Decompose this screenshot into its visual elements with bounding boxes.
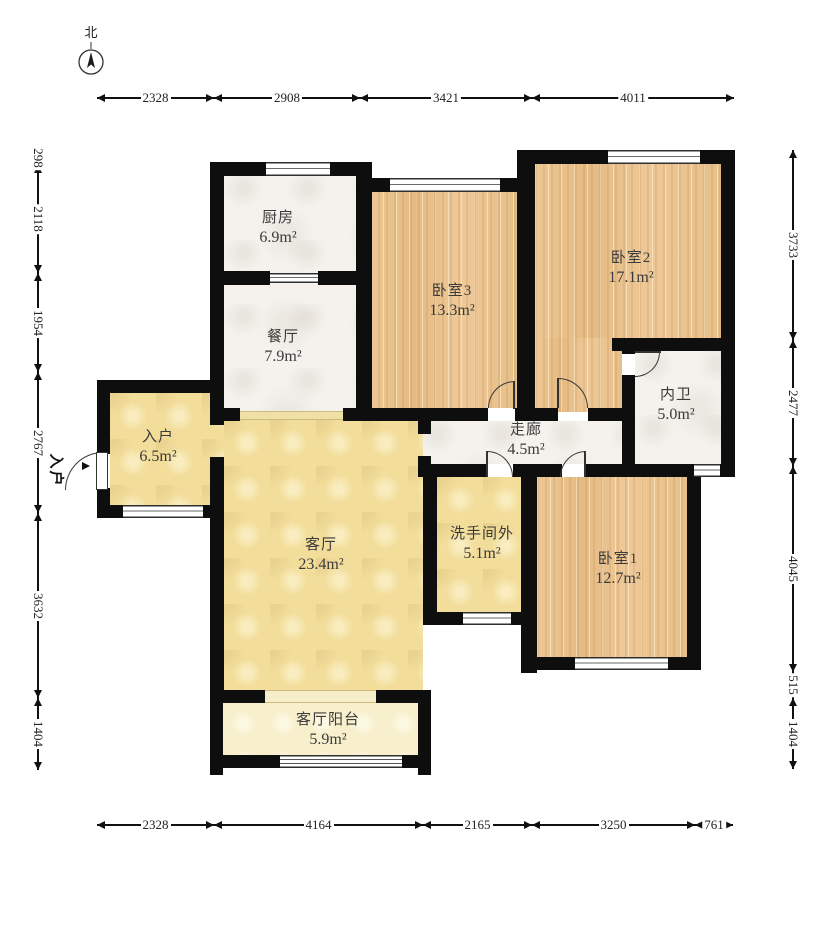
window-bedroom1 [575, 657, 668, 670]
dimension-tick [34, 698, 42, 706]
window-bedroom3 [390, 178, 500, 192]
dimension-label: 4164 [304, 818, 334, 832]
dimension-tick [214, 94, 222, 102]
room-area: 17.1m² [608, 268, 653, 288]
dimension-label: 1954 [31, 308, 45, 338]
room-area: 13.3m² [429, 301, 474, 321]
dimension-tick [524, 821, 532, 829]
entry-direction-marker: 入户 [40, 452, 74, 488]
room-name: 走廊 [507, 420, 544, 440]
dimension-end-arrow [789, 150, 797, 158]
wall-kitchen-bedroom3 [356, 162, 372, 421]
dimension-label: 2477 [786, 388, 800, 418]
room-label-balcony: 客厅阳台 5.9m² [296, 710, 360, 750]
room-area: 6.9m² [259, 228, 296, 248]
dimension-tick [789, 458, 797, 466]
dimension-end-arrow [34, 762, 42, 770]
room-label-corridor: 走廊 4.5m² [507, 420, 544, 460]
dimension-tick [532, 821, 540, 829]
dimension-label: 2118 [31, 204, 45, 234]
room-name: 卧室3 [429, 281, 474, 301]
door-leaf-bedroom2 [557, 378, 559, 408]
dimension-label: 3632 [31, 591, 45, 621]
compass: 北 [69, 22, 113, 81]
entry-direction-label: 入户 [47, 453, 68, 487]
dimension-tick [687, 821, 695, 829]
dimension-tick [789, 340, 797, 348]
dimension-tick [789, 332, 797, 340]
wall-inner-bath-left-a [622, 338, 635, 354]
wall-corridor-top-c [588, 408, 622, 421]
wall-entry-left-a [97, 380, 110, 454]
window-inner-bath [694, 464, 720, 477]
room-name: 厨房 [259, 208, 296, 228]
dimension-label: 2165 [463, 818, 493, 832]
door-leaf-inner-bath [635, 351, 661, 353]
room-label-bedroom1: 卧室1 12.7m² [595, 549, 640, 589]
room-area: 12.7m² [595, 569, 640, 589]
window-kitchen [266, 162, 330, 176]
dimension-tick [352, 94, 360, 102]
door-leaf-washroom [486, 451, 488, 477]
dimension-tick [206, 94, 214, 102]
dimension-tick [524, 94, 532, 102]
room-label-kitchen: 厨房 6.9m² [259, 208, 296, 248]
door-leaf-bedroom1 [584, 451, 586, 477]
dimension-tick [789, 698, 797, 706]
dimension-tick [34, 690, 42, 698]
room-name: 卧室1 [595, 549, 640, 569]
window-washroom [463, 612, 511, 625]
room-area: 5.9m² [296, 730, 360, 750]
window-entry [123, 505, 203, 518]
dimension-end-arrow [789, 761, 797, 769]
window-balcony [280, 755, 402, 768]
wall-kitchen-bottom-left [210, 271, 270, 285]
dimension-label: 3250 [599, 818, 629, 832]
dimension-end-arrow [97, 821, 105, 829]
door-leaf-entry [96, 452, 108, 490]
room-name: 卧室2 [608, 248, 653, 268]
dimension-end-arrow [726, 94, 734, 102]
dimension-label: 4045 [786, 554, 800, 584]
dimension-label: 3421 [431, 91, 461, 105]
dimension-label: 3733 [786, 230, 800, 260]
wall-bedroom1-right [687, 464, 701, 670]
room-name: 客厅阳台 [296, 710, 360, 730]
dimension-tick [415, 821, 423, 829]
dimension-tick [789, 664, 797, 672]
dimension-end-arrow [97, 94, 105, 102]
dimension-label: 2328 [141, 818, 171, 832]
wall-living-left [210, 457, 224, 703]
room-name: 洗手间外 [450, 524, 514, 544]
wall-entry-top [97, 380, 224, 393]
window-bedroom2 [608, 150, 700, 164]
dimension-tick [34, 513, 42, 521]
kitchen-door-opening [270, 273, 318, 283]
compass-north-label: 北 [69, 22, 113, 41]
wall-corridor-west-stub-top [418, 408, 431, 434]
dimension-tick [423, 821, 431, 829]
room-label-dining: 餐厅 7.9m² [264, 327, 301, 367]
dimension-label: 1404 [31, 719, 45, 749]
dimension-label: 1404 [786, 719, 800, 749]
dimension-tick [360, 94, 368, 102]
room-area: 7.9m² [264, 347, 301, 367]
floor-plan-canvas: 厨房 6.9m² 餐厅 7.9m² 卧室3 13.3m² 卧室2 17.1m² … [0, 0, 833, 927]
threshold-living-balcony [263, 690, 378, 703]
room-label-bedroom3: 卧室3 13.3m² [429, 281, 474, 321]
dimension-tick [34, 273, 42, 281]
wall-kitchen-bottom-right [318, 271, 370, 285]
dimension-tick [34, 265, 42, 273]
dimension-tick [206, 821, 214, 829]
dimension-label: 515 [786, 673, 800, 697]
room-label-entry: 入户 6.5m² [139, 427, 176, 467]
wall-corridor-top-a [343, 408, 488, 421]
room-label-washroom: 洗手间外 5.1m² [450, 524, 514, 564]
room-area: 5.1m² [450, 544, 514, 564]
dimension-tick [34, 372, 42, 380]
dimension-tick [34, 505, 42, 513]
threshold-dining-living [240, 411, 343, 420]
room-area: 5.0m² [657, 405, 694, 425]
wall-dining-stub [224, 408, 240, 421]
dimension-tick [34, 364, 42, 372]
dimension-tick [214, 821, 222, 829]
wall-washroom-bedroom1 [521, 464, 537, 673]
room-area: 4.5m² [507, 440, 544, 460]
room-name: 内卫 [657, 385, 694, 405]
dimension-label: 761 [702, 818, 726, 832]
dimension-label: 2908 [272, 91, 302, 105]
dimension-label: 2328 [141, 91, 171, 105]
wall-inner-bath-left-b [622, 375, 635, 473]
room-area: 6.5m² [139, 447, 176, 467]
room-name: 客厅 [298, 535, 343, 555]
entry-direction-arrow [82, 462, 90, 470]
compass-dial-icon [76, 42, 106, 76]
room-name: 餐厅 [264, 327, 301, 347]
room-area: 23.4m² [298, 555, 343, 575]
dimension-label: 4011 [618, 91, 648, 105]
wall-washroom-left [423, 464, 437, 625]
room-label-living: 客厅 23.4m² [298, 535, 343, 575]
door-leaf-bedroom3 [513, 381, 515, 409]
wall-bedroom3-bedroom2 [517, 150, 535, 421]
dimension-label: 298 [31, 146, 45, 170]
room-name: 入户 [139, 427, 176, 447]
dimension-tick [789, 466, 797, 474]
room-label-inner-bath: 内卫 5.0m² [657, 385, 694, 425]
room-label-bedroom2: 卧室2 17.1m² [608, 248, 653, 288]
dimension-tick [532, 94, 540, 102]
dimension-line-left [37, 150, 39, 770]
wall-right-outer [721, 150, 735, 473]
dimension-end-arrow [725, 821, 733, 829]
